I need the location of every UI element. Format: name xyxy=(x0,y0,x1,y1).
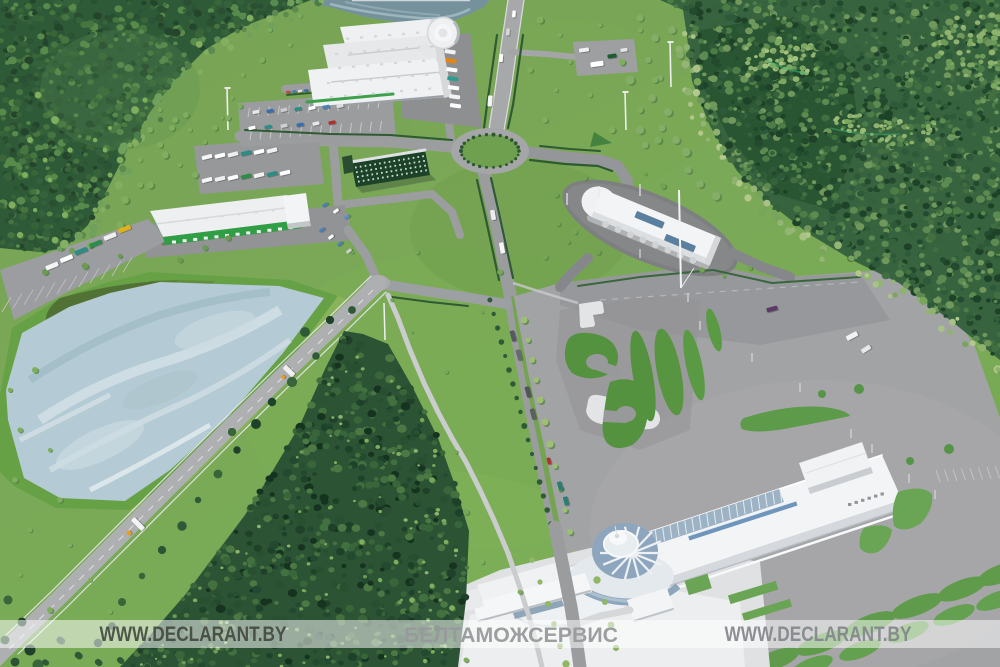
svg-text:WWW.DECLARANT.BY: WWW.DECLARANT.BY xyxy=(100,623,287,646)
svg-text:WWW.DECLARANT.BY: WWW.DECLARANT.BY xyxy=(725,623,912,646)
svg-text:БЕЛТАМОЖСЕРВИС: БЕЛТАМОЖСЕРВИС xyxy=(404,624,618,647)
